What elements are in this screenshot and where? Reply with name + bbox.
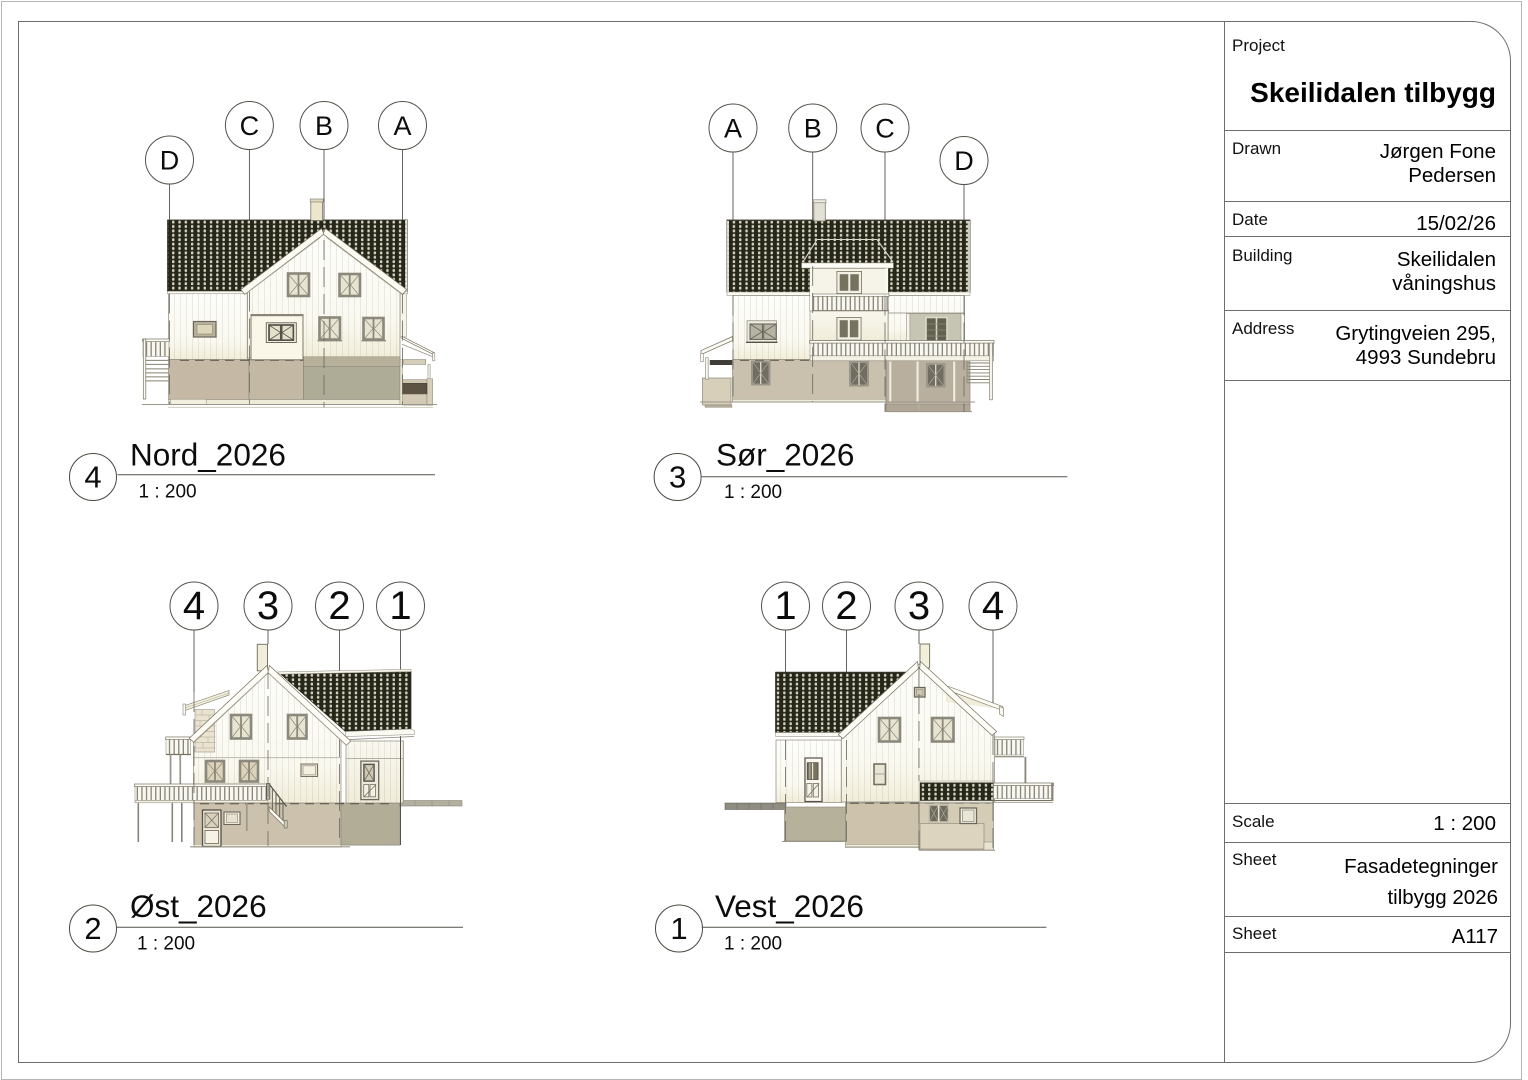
svg-text:Sør_2026: Sør_2026 [716, 437, 854, 473]
svg-text:A: A [724, 114, 742, 144]
svg-text:3: 3 [908, 584, 930, 628]
svg-text:2: 2 [835, 584, 857, 628]
svg-text:1 : 200: 1 : 200 [137, 934, 195, 955]
svg-text:3: 3 [257, 584, 279, 628]
svg-text:4: 4 [982, 584, 1004, 628]
svg-text:1 : 200: 1 : 200 [724, 482, 782, 503]
svg-text:Vest_2026: Vest_2026 [715, 888, 864, 924]
svg-text:4: 4 [84, 460, 101, 495]
svg-text:C: C [875, 114, 895, 144]
svg-text:1: 1 [774, 584, 796, 628]
svg-text:1 : 200: 1 : 200 [724, 934, 782, 955]
svg-text:2: 2 [84, 911, 101, 946]
svg-text:Øst_2026: Øst_2026 [130, 888, 267, 924]
svg-text:Nord_2026: Nord_2026 [130, 437, 286, 473]
svg-text:3: 3 [669, 460, 686, 495]
svg-text:D: D [954, 146, 974, 176]
svg-text:D: D [160, 146, 180, 176]
svg-text:1: 1 [389, 584, 411, 628]
svg-text:B: B [315, 111, 333, 141]
svg-text:1: 1 [670, 911, 687, 946]
svg-text:C: C [240, 111, 260, 141]
svg-text:2: 2 [328, 584, 350, 628]
svg-text:4: 4 [183, 584, 205, 628]
svg-text:A: A [393, 111, 411, 141]
svg-text:B: B [804, 114, 822, 144]
svg-text:1 : 200: 1 : 200 [139, 482, 197, 503]
